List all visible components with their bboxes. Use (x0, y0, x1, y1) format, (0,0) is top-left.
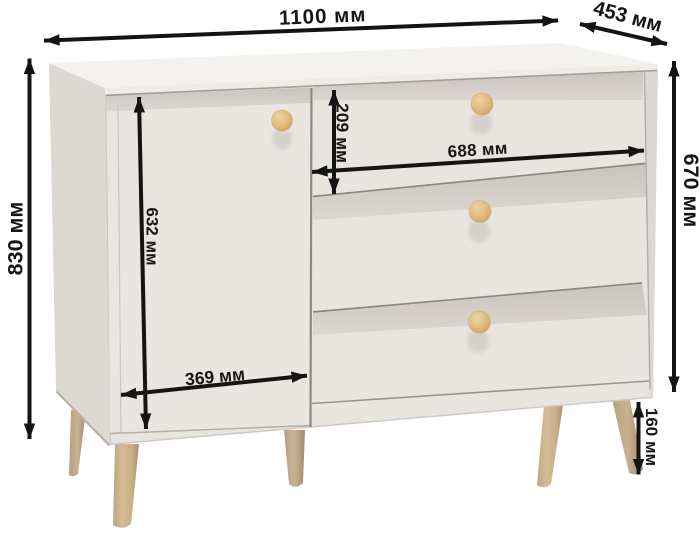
svg-text:670 мм: 670 мм (679, 154, 700, 228)
svg-text:160 мм: 160 мм (642, 408, 661, 466)
svg-text:632 мм: 632 мм (143, 207, 162, 265)
svg-text:830 мм: 830 мм (4, 202, 28, 276)
svg-text:688 мм: 688 мм (447, 139, 508, 162)
svg-text:1100 мм: 1100 мм (279, 3, 367, 29)
svg-text:209 мм: 209 мм (333, 103, 353, 163)
